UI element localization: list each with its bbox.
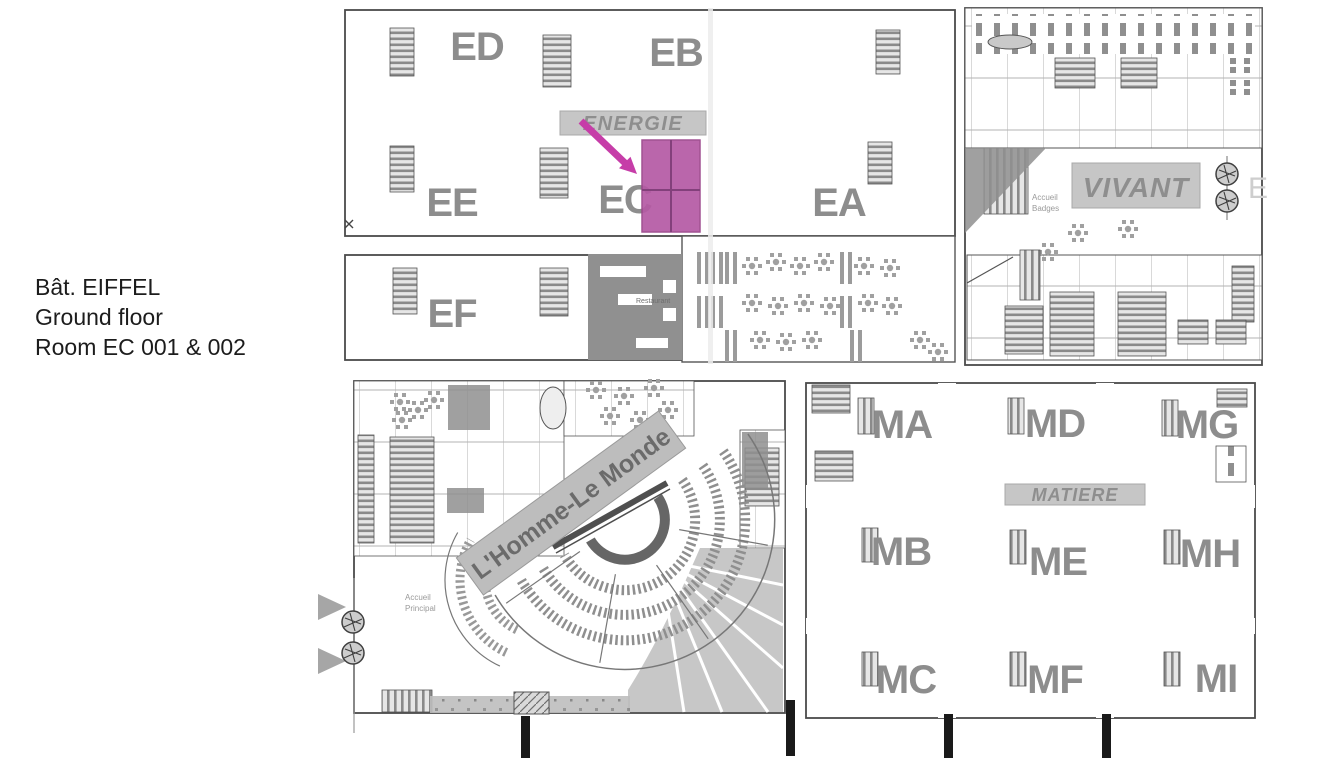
section-MF: MF (1027, 658, 1083, 702)
restaurant-label: Restaurant (636, 298, 670, 305)
section-MA: MA (872, 403, 932, 447)
edge-letter: E (1248, 172, 1268, 205)
section-MD: MD (1025, 402, 1085, 446)
tiered-seating (1118, 292, 1166, 356)
building-homme-le-monde: L'Homme-Le Monde Accueil Principal (318, 379, 785, 733)
building-vivant: Accueil Badges VIVANT E (965, 8, 1268, 365)
dark-room (447, 488, 484, 513)
restaurant-zone: Restaurant (588, 254, 682, 360)
dark-room (742, 432, 768, 488)
eiffel-cross-corridor (718, 135, 744, 235)
section-ED: ED (450, 25, 504, 69)
dark-room (448, 385, 490, 430)
section-MG: MG (1176, 403, 1238, 447)
lecture-hall (1055, 58, 1095, 88)
tiered-seating (1050, 292, 1094, 356)
tree-icon (342, 611, 364, 633)
section-EB: EB (649, 31, 703, 75)
energie-banner-label: ENERGIE (583, 113, 684, 135)
badges-dark-zone (965, 148, 1046, 233)
accueil-badges-label-2: Badges (1032, 204, 1059, 213)
cross-mark (345, 220, 353, 228)
building-matiere: MATIERE MA MD MG MB ME MH MC MF MI (806, 383, 1255, 718)
scan-fold-seam (708, 8, 713, 364)
floor-plan-svg: Restaurant ENERGIE ED (0, 0, 1328, 776)
section-MC: MC (876, 658, 936, 702)
highlighted-room-ec (642, 140, 700, 232)
tree-icon (1216, 190, 1238, 212)
oval-track (540, 387, 566, 429)
hatched-zone (514, 692, 549, 714)
tree-icon (342, 642, 364, 664)
entrance-arrow-icon (318, 594, 346, 620)
accueil-badges-label-1: Accueil (1032, 193, 1058, 202)
section-EE: EE (426, 181, 478, 225)
shelving (390, 437, 434, 543)
matiere-banner-label: MATIERE (1032, 485, 1119, 505)
section-ME: ME (1029, 540, 1087, 584)
vivant-banner-label: VIVANT (1083, 172, 1191, 203)
radial-stacks (628, 548, 783, 712)
accueil-principal-label-2: Principal (405, 604, 436, 613)
building-eiffel: Restaurant ENERGIE ED (345, 8, 955, 364)
section-MI: MI (1195, 657, 1237, 701)
floorplan-scan: Bât. EIFFEL Ground floor Room EC 001 & 0… (0, 0, 1328, 776)
section-MB: MB (871, 530, 931, 574)
lecture-hall (1121, 58, 1157, 88)
section-MH: MH (1180, 532, 1240, 576)
tree-icon (1216, 163, 1238, 185)
section-EF: EF (427, 292, 476, 336)
matiere-banner: MATIERE (1005, 484, 1145, 505)
accueil-principal-label-1: Accueil (405, 593, 431, 602)
vivant-banner: VIVANT (1072, 163, 1200, 208)
section-EA: EA (812, 181, 866, 225)
oval-table (988, 35, 1032, 49)
